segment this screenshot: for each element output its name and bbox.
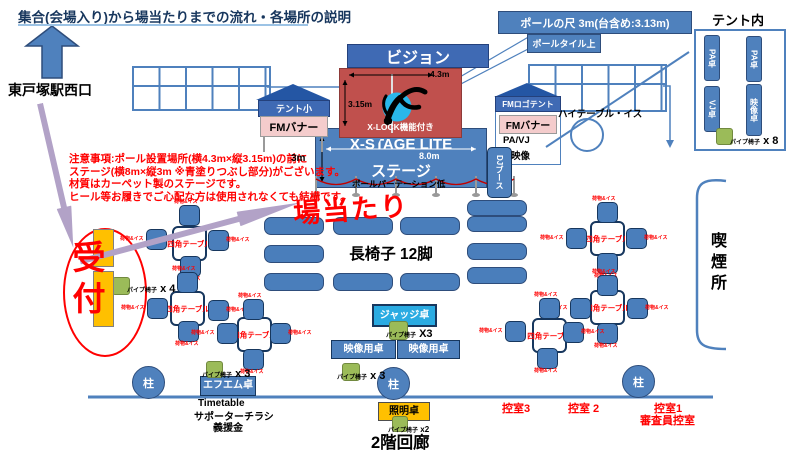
long-bench (264, 245, 324, 263)
luggage-chair-label: 荷物&イス (645, 304, 668, 311)
pillar: 柱 (622, 365, 655, 398)
fm-tent-name: FMロゴテント (495, 96, 561, 112)
luggage-chair: 荷物&イス (505, 321, 526, 342)
vj-table: VJ卓 (704, 86, 720, 132)
pa-vj-label: PA/VJ (503, 135, 530, 146)
square-table-label: 四角テーブル (585, 302, 630, 313)
square-table: 四角テーブル (237, 317, 272, 352)
station-label: 東戸塚駅西口 (8, 80, 92, 100)
pole-height-callout: ポールの尺 3m(台含め:3.13m) (498, 11, 692, 34)
pipe-chair-name: パイプ椅子 (388, 428, 418, 434)
luggage-chair-label: 荷物&イス (226, 236, 249, 243)
long-bench (467, 243, 527, 260)
video-label: 映像 (511, 148, 530, 162)
flyer-line-3: 義援金 (213, 419, 243, 434)
fm-tent-banner: FMバナー (499, 115, 557, 134)
small-tent-name: テント小 (258, 100, 330, 117)
pipe-chair-name: パイプ椅子 (202, 373, 232, 379)
smoking-area-label: 喫煙所 (704, 232, 728, 295)
video-table: 映像卓 (746, 84, 762, 136)
luggage-chair: 荷物&イス (217, 323, 238, 344)
luggage-chair: 荷物&イス (537, 348, 558, 369)
luggage-chair-label: 荷物&イス (540, 234, 563, 241)
long-bench (467, 200, 527, 216)
video-desk-1: 映像用卓 (331, 340, 396, 359)
station-up-arrow (26, 26, 78, 78)
notes-line-2: ステージ(横8m×縦3m ※青塗りつぶし部分)がございます。 (69, 166, 351, 179)
dj-booth: DJブース (487, 147, 512, 198)
luggage-chair-label: 荷物&イス (534, 291, 557, 298)
notes-line-1: 注意事項:ポール設置場所(横4.3m×縦3.15m)の前に (69, 153, 351, 166)
pipe-chair-count-label: パイプ椅子 x 4 (127, 279, 175, 297)
luggage-chair: 荷物&イス (627, 298, 648, 319)
pipe-chair-name: パイプ椅子 (730, 140, 760, 146)
tent-interior-heading: テント内 (712, 10, 764, 29)
luggage-chair-label: 荷物&イス (175, 340, 198, 347)
square-table-label: 四角テーブル (165, 303, 210, 314)
pole-width-label: 4.3m (430, 69, 449, 79)
pole-area: 4.3m 3.15m X-LOCK機能付き (339, 68, 462, 138)
notes-line-3: 材質はカーペット製のステージです。 (69, 178, 351, 191)
square-table: 四角テーブル (590, 221, 625, 256)
vision-banner: ビジョン (347, 44, 489, 68)
luggage-chair: 荷物&イス (597, 202, 618, 223)
pipe-chair-count: x 3 (367, 370, 385, 382)
luggage-chair: 荷物&イス (597, 275, 618, 296)
pipe-chair-count-label: パイプ椅子 x 8 (730, 131, 778, 149)
luggage-chair: 荷物&イス (208, 300, 229, 321)
pipe-chair-count: X3 (416, 328, 433, 340)
video-desk-2: 映像用卓 (397, 340, 460, 359)
luggage-chair: 荷物&イス (177, 272, 198, 293)
pipe-chair-count-label: パイプ椅子 x 3 (202, 364, 250, 382)
long-bench (400, 273, 460, 291)
high-table-label: ハイテーブル・イス (558, 106, 642, 120)
luggage-chair-label: 荷物&イス (238, 292, 261, 299)
pa-table-2: PA卓 (746, 36, 762, 82)
pipe-chair-name: パイプ椅子 (127, 288, 157, 294)
pipe-chair-name: パイプ椅子 (337, 375, 367, 381)
luggage-chair-label: 荷物&イス (534, 367, 557, 374)
luggage-chair-label: 荷物&イス (592, 195, 615, 202)
luggage-chair: 荷物&イス (570, 298, 591, 319)
pipe-chair-count-label: パイプ椅子 x2 (388, 419, 429, 437)
small-tent-roof (256, 84, 330, 100)
luggage-chair: 荷物&イス (626, 228, 647, 249)
truss-left (132, 66, 271, 111)
tent-leg (321, 135, 323, 152)
pipe-chair-count: x 4 (157, 283, 175, 295)
pipe-chair-count-label: パイプ椅子 x 3 (337, 366, 385, 384)
tent-leg (263, 135, 265, 152)
square-table-label: 四角テーブル (585, 233, 630, 244)
pillar: 柱 (132, 366, 165, 399)
stage-depth-label: 3m (291, 153, 305, 164)
waiting-room-2: 控室 2 (568, 400, 599, 416)
pipe-chair-count: x2 (418, 425, 429, 434)
luggage-chair: 荷物&イス (539, 298, 560, 319)
pipe-chair-count: x 8 (760, 135, 778, 147)
luggage-chair: 荷物&イス (566, 228, 587, 249)
luggage-chair: 荷物&イス (179, 205, 200, 226)
pole-height-label: 3.15m (348, 99, 372, 109)
luggage-chair-label: 荷物&イス (594, 342, 617, 349)
judge-waiting-room: 審査員控室 (640, 412, 695, 428)
long-bench (264, 273, 324, 291)
luggage-chair: 荷物&イス (243, 299, 264, 320)
luggage-chair-label: 荷物&イス (581, 328, 604, 335)
long-bench (467, 216, 527, 232)
luggage-chair: 荷物&イス (208, 230, 229, 251)
waiting-room-3: 控室3 (502, 400, 530, 416)
bench-count-label: 長椅子 12脚 (335, 242, 447, 263)
luggage-chair-label: 荷物&イス (644, 234, 667, 241)
luggage-chair: 荷物&イス (563, 322, 584, 343)
pipe-chair-name: パイプ椅子 (386, 333, 416, 339)
luggage-chair-label: 荷物&イス (479, 327, 502, 334)
baatari-label: 場当たり (292, 184, 410, 231)
venue-layout-slide: 集合(会場入り)から場当たりまでの流れ・各場所の説明 東戸塚駅西口 注意事項:ポ… (0, 0, 800, 450)
luggage-chair-label: 荷物&イス (592, 268, 615, 275)
long-bench (333, 273, 393, 291)
pipe-chair-count-label: パイプ椅子 X3 (386, 324, 433, 342)
luggage-chair-label: 荷物&イス (191, 329, 214, 336)
pipe-chair-count: x 3 (232, 368, 250, 380)
title-underline (18, 24, 308, 26)
square-table-label: 四角テーブル (167, 238, 212, 249)
fm-tent-roof (494, 83, 560, 97)
page-title: 集合(会場入り)から場当たりまでの流れ・各場所の説明 (18, 6, 351, 26)
pole-tile-callout: ポールタイル上 (527, 34, 601, 53)
high-table-circle (570, 118, 604, 152)
small-tent-banner: FMバナー (260, 116, 328, 137)
xlock-label: X-LOCK機能付き (340, 121, 461, 133)
luggage-chair: 荷物&イス (147, 298, 168, 319)
luggage-chair-label: 荷物&イス (288, 329, 311, 336)
luggage-chair-label: 荷物&イス (172, 265, 195, 272)
reception-label: 受付 (62, 240, 110, 322)
pa-table-1: PA卓 (704, 35, 720, 81)
long-bench (467, 267, 527, 284)
luggage-chair: 荷物&イス (270, 323, 291, 344)
